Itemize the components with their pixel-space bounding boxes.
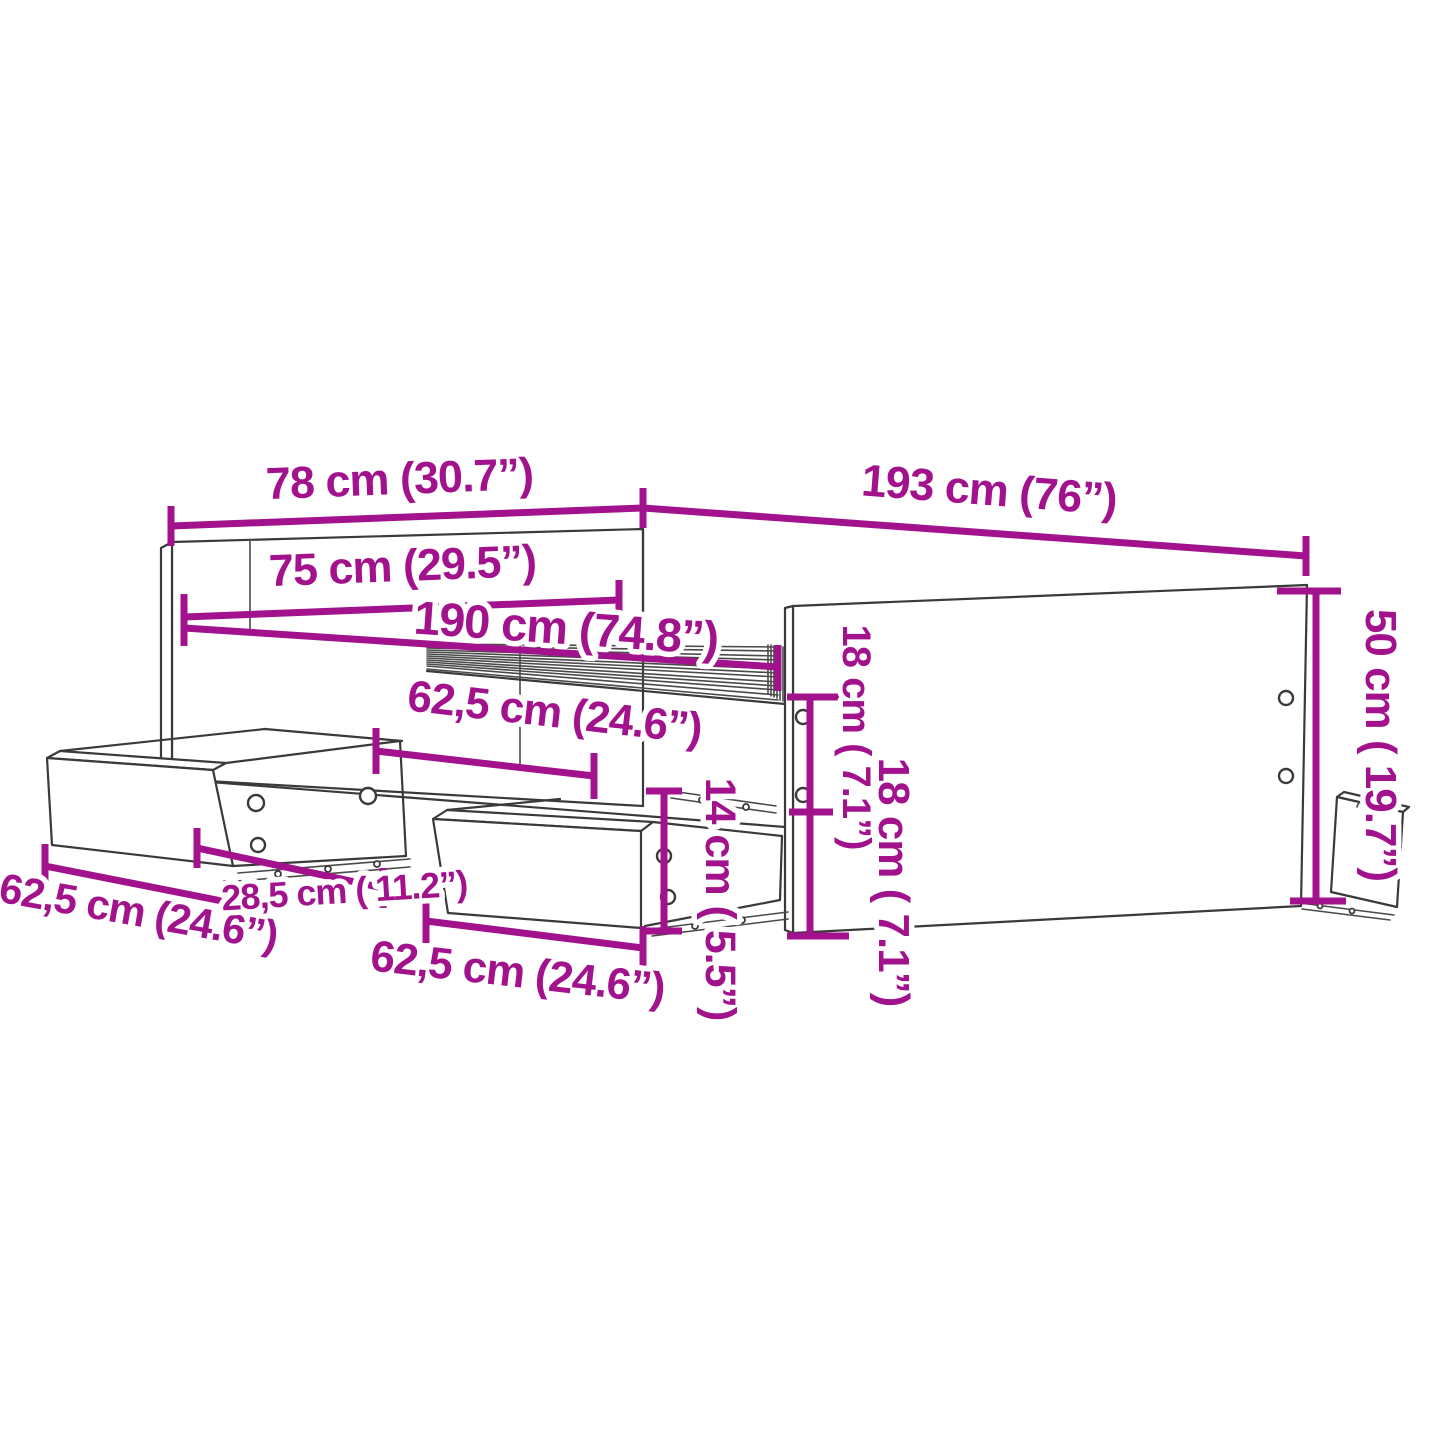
headboard-left-edge — [161, 542, 172, 786]
dim-drawer-front-height — [646, 791, 682, 931]
dim-label-headboard-width: 78 cm (30.7”) — [265, 448, 534, 509]
dim-label-inner-width: 75 cm (29.5”) — [268, 535, 537, 596]
dim-bed-length — [643, 508, 1306, 576]
dim-label-footboard-height: 50 cm ( 19.7”) — [1356, 609, 1405, 881]
dim-label-drawer-front-height: 14 cm ( 5.5”) — [696, 778, 744, 1021]
footboard-hole-4 — [1279, 769, 1293, 783]
dim-label-bed-length: 193 cm (76”) — [860, 454, 1119, 524]
diagram-canvas: 78 cm (30.7”) 193 cm (76”) 75 cm (29.5”)… — [0, 0, 1445, 1445]
footboard-hole-3 — [1279, 691, 1293, 705]
footboard-left-edge — [785, 606, 793, 933]
dim-label-rail-height-lower: 18 cm ( 7.1”) — [869, 758, 918, 1007]
bed-frame-dimension-diagram: 78 cm (30.7”) 193 cm (76”) 75 cm (29.5”)… — [0, 0, 1445, 1445]
